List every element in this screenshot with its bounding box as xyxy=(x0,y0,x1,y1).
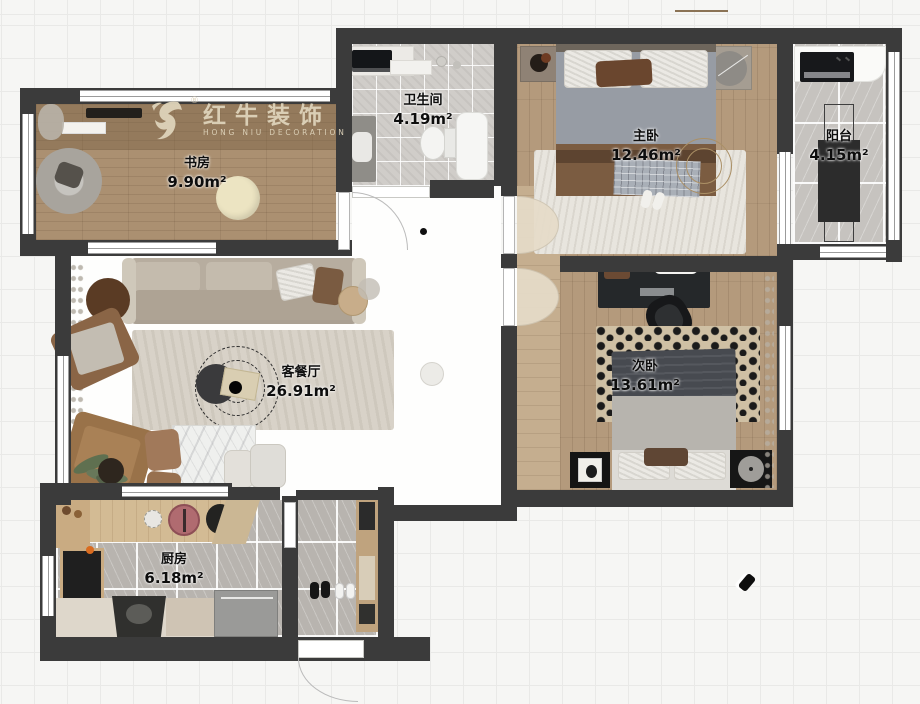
sofa-back-cushion xyxy=(134,262,200,292)
master-balcony-window xyxy=(779,152,791,252)
living-left-window xyxy=(57,356,69,490)
shoe-cabinet[interactable] xyxy=(356,494,378,632)
kitchen-door-opening[interactable] xyxy=(284,502,296,548)
jar xyxy=(74,510,82,518)
second-curtain-strip xyxy=(764,262,774,488)
entry-slipper-black xyxy=(310,582,319,599)
toilet-tank xyxy=(444,128,456,158)
kitchen-pass-window xyxy=(122,486,228,497)
lamp-accent xyxy=(541,53,551,63)
wall-entry-top xyxy=(296,490,378,500)
kitchen-left-window xyxy=(42,556,54,616)
speaker-dot xyxy=(749,467,753,471)
plant-pot xyxy=(98,458,124,484)
rattan-chair[interactable] xyxy=(676,138,732,194)
toilet-bowl[interactable] xyxy=(420,126,446,160)
sink-bowl xyxy=(126,604,152,624)
grater-plate xyxy=(144,510,162,528)
wall-corridor-seg3 xyxy=(501,326,517,490)
table-center-dot xyxy=(229,381,242,394)
hall-dot-marker xyxy=(420,228,427,235)
study-door-leaf[interactable] xyxy=(338,192,350,250)
water-heater[interactable] xyxy=(456,112,488,180)
stove-grate xyxy=(183,509,186,532)
fridge[interactable] xyxy=(214,590,278,637)
sofa-back-cushion xyxy=(206,262,272,292)
floor-plan-canvas: ® 红牛装饰 HONG NIU DECORATION 书房 9.90m² 卫生间… xyxy=(0,0,920,704)
kitchen-top-counter[interactable] xyxy=(88,500,232,542)
balcony-bottom-window xyxy=(820,246,886,258)
wall-master-second xyxy=(560,256,793,272)
entry-door-swing xyxy=(298,658,358,702)
dimension-line xyxy=(675,10,728,12)
entry-slipper-white xyxy=(346,583,355,599)
second-right-window xyxy=(779,326,791,430)
wall-hall-bottom xyxy=(394,505,517,521)
wall-top xyxy=(336,28,902,44)
cabinet-item-dark xyxy=(359,502,375,530)
kitchen-left-cabinet[interactable] xyxy=(56,500,90,548)
brand-name: 红牛装饰 xyxy=(203,104,347,128)
cabinet-item-light xyxy=(359,556,375,600)
armchair-blanket xyxy=(67,321,125,375)
bath-shelf[interactable] xyxy=(390,60,432,75)
sofa[interactable] xyxy=(128,258,360,324)
balcony-runner[interactable] xyxy=(818,140,860,222)
study-bottom-window xyxy=(88,242,216,254)
wall-corridor-seg1 xyxy=(501,186,517,196)
shower-head[interactable] xyxy=(436,56,447,67)
shower-control[interactable] xyxy=(453,61,461,69)
wall-entry-right xyxy=(378,487,394,660)
wall-master-balcony xyxy=(777,44,793,154)
second-nightstand-left[interactable] xyxy=(570,452,610,488)
second-bed[interactable] xyxy=(612,346,736,490)
wall-study-right-lower xyxy=(336,250,352,256)
second-blanket xyxy=(611,348,736,399)
cat-icon xyxy=(586,465,597,478)
kitchen-prep-counter xyxy=(166,598,216,636)
side-plant[interactable] xyxy=(358,278,380,300)
study-ottoman[interactable] xyxy=(216,176,260,220)
brand-logo: ® 红牛装饰 HONG NIU DECORATION xyxy=(148,98,347,142)
master-door-leaf[interactable] xyxy=(503,196,515,254)
wall-corridor-seg2 xyxy=(501,254,517,268)
wall-bath-right xyxy=(494,28,517,186)
wall-bath-bottom-chunk xyxy=(430,180,494,198)
vanity-sink xyxy=(352,132,372,162)
hall-stool[interactable] xyxy=(420,362,444,386)
rattan-inner xyxy=(686,148,722,184)
wall-kitchen-top-b xyxy=(232,487,280,500)
fridge-handle xyxy=(221,597,273,599)
second-door-leaf[interactable] xyxy=(503,268,515,326)
master-nightstand-left[interactable] xyxy=(520,46,558,82)
wall-bottom xyxy=(40,637,430,661)
lumbar-pillow xyxy=(595,59,652,88)
bull-icon xyxy=(148,98,188,142)
registered-mark: ® xyxy=(190,96,199,106)
dining-chair-right-2[interactable] xyxy=(250,444,286,488)
stray-object xyxy=(738,573,757,592)
wall-second-bottom xyxy=(501,490,793,507)
study-plant[interactable] xyxy=(38,104,64,140)
dining-chair-left-1[interactable] xyxy=(144,428,182,471)
jar xyxy=(62,506,71,515)
washer-panel xyxy=(804,72,850,78)
flame-accent xyxy=(86,546,94,554)
study-left-window xyxy=(22,114,34,234)
balcony-right-window xyxy=(888,52,900,240)
round-stove xyxy=(168,504,200,536)
cabinet-item-dark xyxy=(359,604,375,624)
bath-washer[interactable] xyxy=(352,50,392,72)
brand-subtitle: HONG NIU DECORATION xyxy=(203,128,347,137)
entry-slipper-white xyxy=(335,583,344,599)
cat-mat xyxy=(578,458,602,482)
second-mattress-mid xyxy=(612,396,736,452)
second-lumbar-pillow xyxy=(644,448,688,466)
study-shelf[interactable] xyxy=(86,108,142,118)
entry-door-threshold[interactable] xyxy=(298,640,364,658)
entry-slipper-black xyxy=(321,581,330,598)
study-papers xyxy=(62,122,106,134)
